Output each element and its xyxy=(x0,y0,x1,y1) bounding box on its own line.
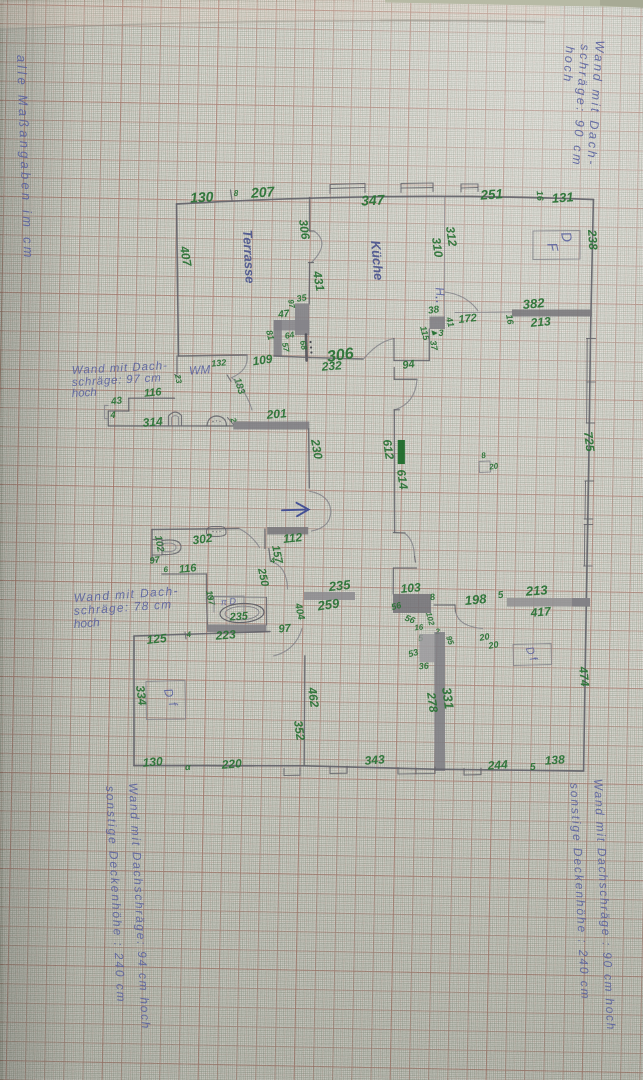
svg-text:235: 235 xyxy=(228,610,249,623)
svg-text:612: 612 xyxy=(380,438,397,460)
svg-text:725: 725 xyxy=(581,431,597,453)
svg-text:43: 43 xyxy=(109,395,123,408)
svg-text:331: 331 xyxy=(439,686,457,710)
svg-text:238: 238 xyxy=(585,228,600,250)
svg-text:4: 4 xyxy=(109,410,115,420)
svg-text:97: 97 xyxy=(278,622,292,635)
svg-text:130: 130 xyxy=(142,754,163,770)
svg-text:334: 334 xyxy=(133,684,150,706)
svg-text:314: 314 xyxy=(142,414,163,430)
svg-text:103: 103 xyxy=(400,580,421,596)
svg-text:343: 343 xyxy=(364,752,385,768)
svg-text:16: 16 xyxy=(535,190,546,202)
svg-text:116: 116 xyxy=(143,386,162,400)
svg-text:213: 213 xyxy=(524,582,548,599)
svg-text:213: 213 xyxy=(529,314,551,330)
svg-text:Terrasse: Terrasse xyxy=(240,229,258,283)
svg-text:8: 8 xyxy=(234,189,239,198)
svg-text:20: 20 xyxy=(487,639,500,651)
svg-text:382: 382 xyxy=(522,295,546,312)
svg-text:417: 417 xyxy=(529,604,552,620)
svg-text:474: 474 xyxy=(576,665,592,688)
svg-text:207: 207 xyxy=(249,183,276,201)
svg-text:198: 198 xyxy=(464,591,488,608)
svg-text:278: 278 xyxy=(424,690,441,713)
svg-text:hoch: hoch xyxy=(560,46,577,85)
svg-text:132: 132 xyxy=(211,357,227,368)
svg-text:64: 64 xyxy=(284,329,295,341)
svg-text:116: 116 xyxy=(178,562,198,576)
svg-text:614: 614 xyxy=(394,468,411,490)
svg-text:130: 130 xyxy=(190,188,214,205)
svg-text:223: 223 xyxy=(214,627,236,642)
svg-text:125: 125 xyxy=(146,631,168,647)
svg-text:347: 347 xyxy=(361,191,386,208)
svg-text:47: 47 xyxy=(277,308,291,320)
svg-text:hoch: hoch xyxy=(73,615,100,631)
svg-text:312: 312 xyxy=(443,225,460,247)
svg-text:38: 38 xyxy=(427,304,440,317)
svg-text:251: 251 xyxy=(479,186,504,203)
svg-text:112: 112 xyxy=(282,530,303,546)
svg-text:20: 20 xyxy=(488,461,500,471)
svg-text:352: 352 xyxy=(291,719,308,741)
svg-text:302: 302 xyxy=(192,531,214,548)
svg-text:232: 232 xyxy=(320,358,342,373)
svg-text:109: 109 xyxy=(252,352,274,369)
svg-text:94: 94 xyxy=(402,358,416,372)
svg-text:201: 201 xyxy=(265,406,287,422)
svg-text:131: 131 xyxy=(551,189,574,205)
svg-text:220: 220 xyxy=(220,756,242,771)
svg-text:310: 310 xyxy=(429,236,446,258)
svg-text:138: 138 xyxy=(544,752,565,767)
svg-text:172: 172 xyxy=(458,312,478,326)
svg-text:244: 244 xyxy=(486,757,508,772)
svg-text:WM: WM xyxy=(189,362,211,377)
svg-text:462: 462 xyxy=(305,685,322,708)
svg-text:235: 235 xyxy=(327,577,352,594)
svg-text:68: 68 xyxy=(298,340,310,351)
svg-text:16: 16 xyxy=(414,623,424,633)
svg-text:hoch: hoch xyxy=(72,387,98,400)
svg-text:3: 3 xyxy=(438,328,443,338)
